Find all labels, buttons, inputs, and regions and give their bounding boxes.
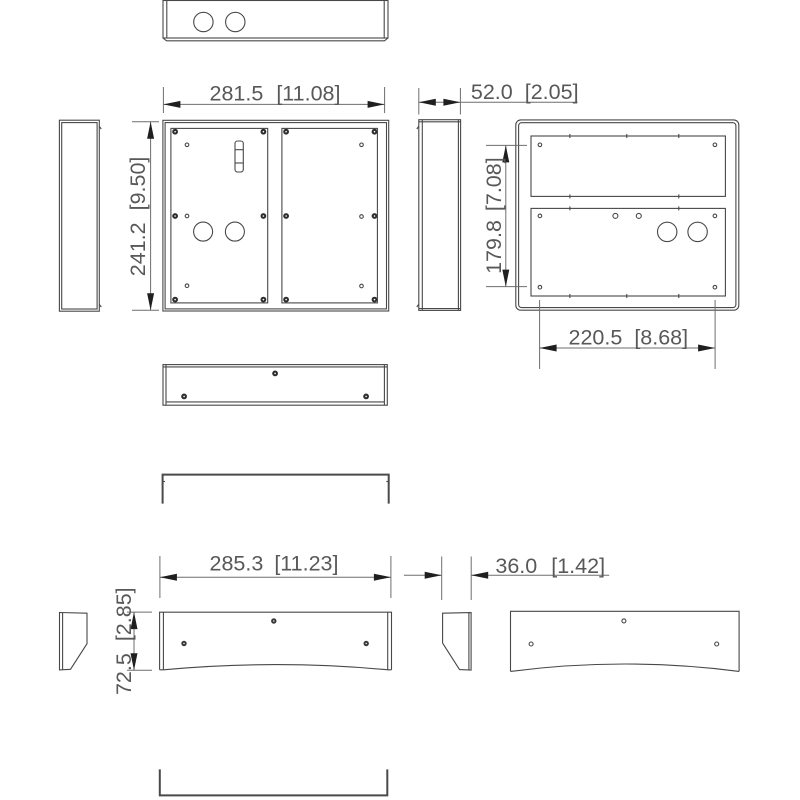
- svg-text:179.8[7.08]: 179.8[7.08]: [482, 157, 506, 274]
- svg-text:72.5[2.85]: 72.5[2.85]: [112, 587, 136, 695]
- svg-text:281.5[11.08]: 281.5[11.08]: [210, 81, 341, 105]
- svg-text:52.0[2.05]: 52.0[2.05]: [471, 80, 579, 104]
- svg-text:285.3[11.23]: 285.3[11.23]: [210, 552, 339, 576]
- svg-text:241.2[9.50]: 241.2[9.50]: [126, 157, 150, 277]
- svg-text:36.0[1.42]: 36.0[1.42]: [495, 554, 605, 578]
- svg-text:220.5[8.68]: 220.5[8.68]: [569, 325, 689, 349]
